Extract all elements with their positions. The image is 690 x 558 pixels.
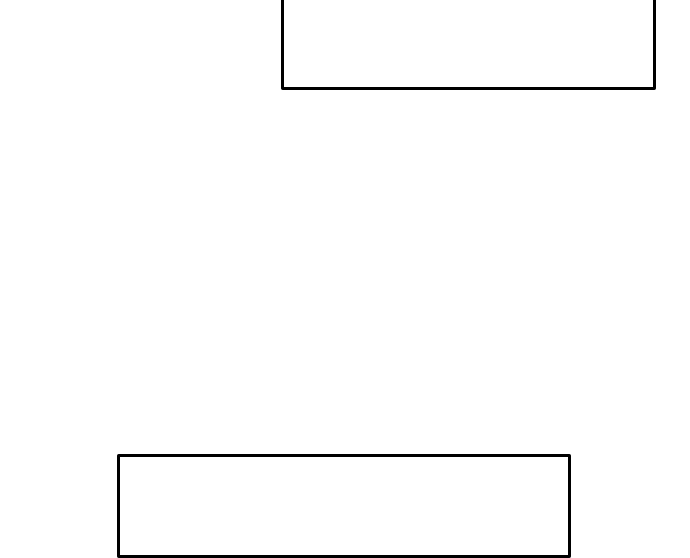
diagram-canvas bbox=[0, 0, 690, 539]
rectangle-shape-top-label bbox=[284, 0, 653, 87]
rectangle-shape-top[interactable] bbox=[281, 0, 656, 90]
rectangle-shape-bottom[interactable] bbox=[117, 454, 571, 558]
rectangle-shape-bottom-label bbox=[120, 457, 568, 555]
